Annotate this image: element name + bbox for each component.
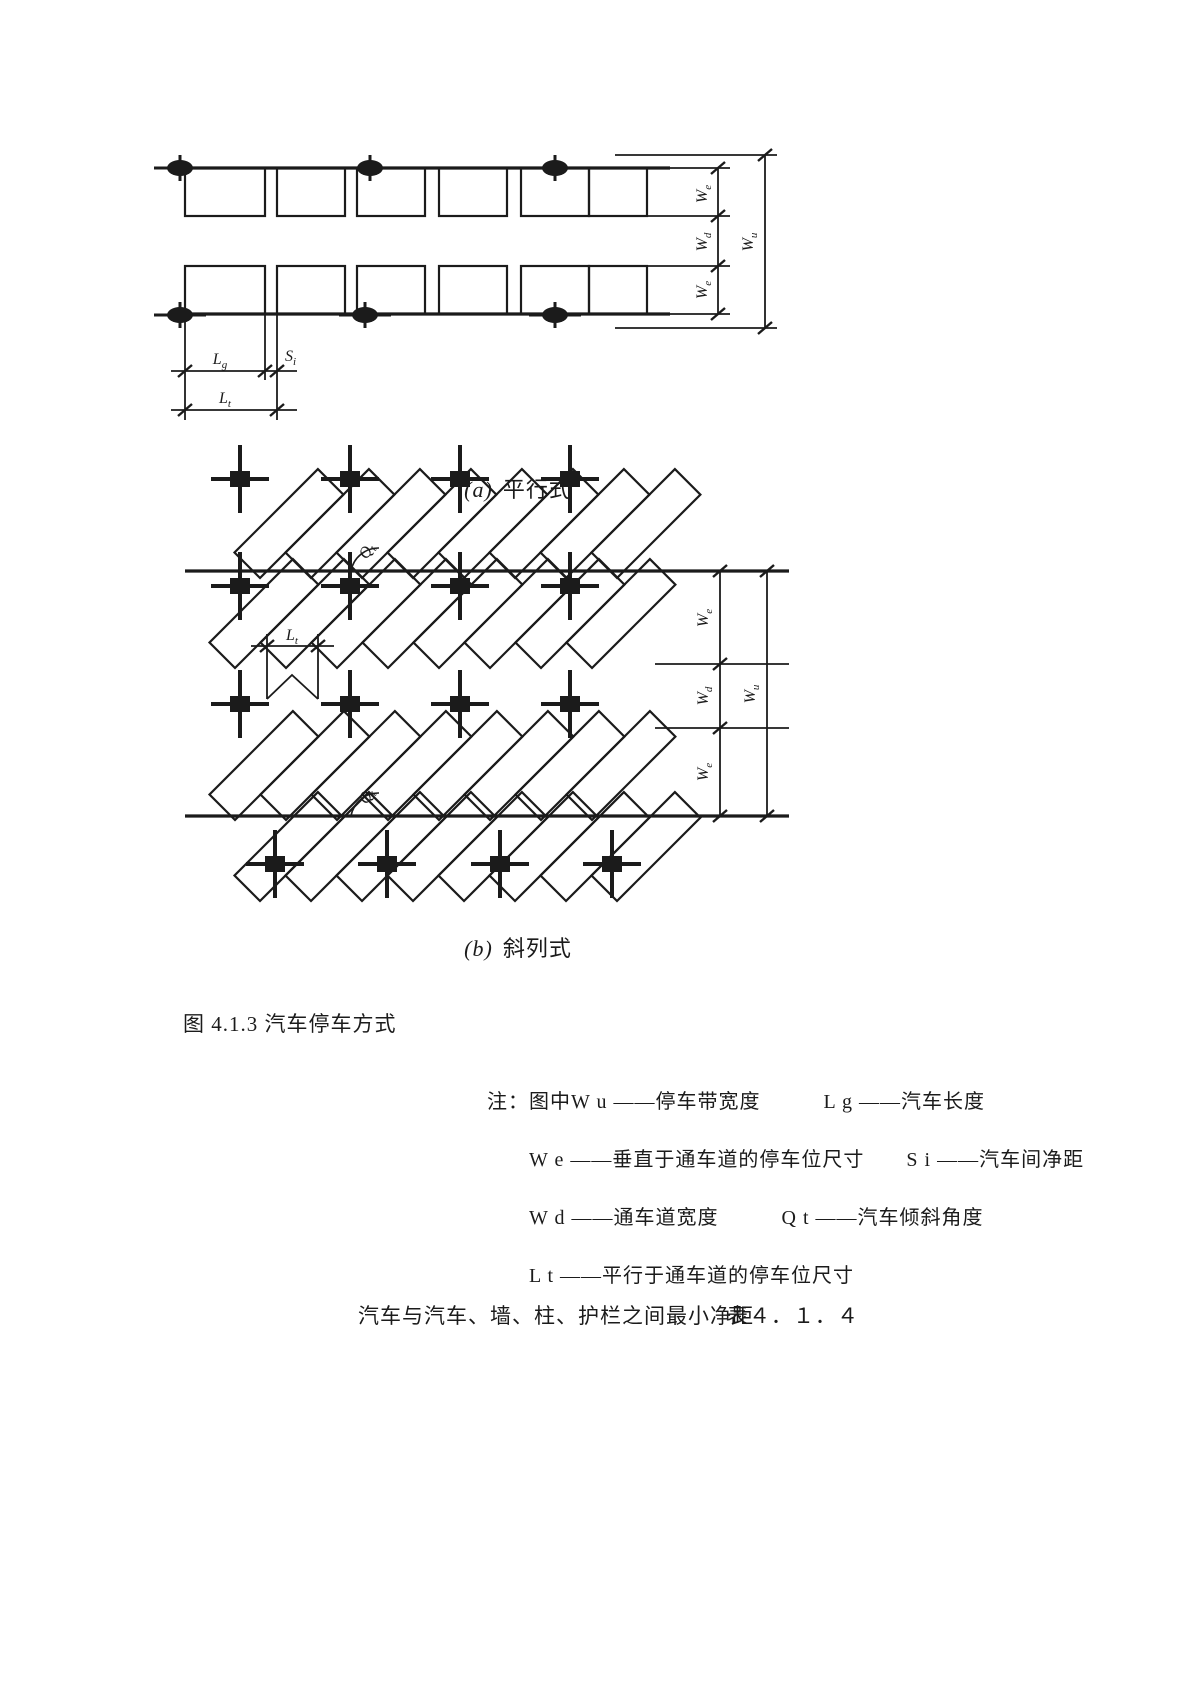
dim-label-si: Si (285, 348, 296, 368)
extension-lines (655, 664, 789, 728)
row1-parking-stalls (185, 168, 647, 216)
note-line-1: 注：图中W u ——停车带宽度 L g ——汽车长度 (487, 1085, 985, 1114)
dim-label-we-upper: We (695, 609, 715, 627)
column-markers (154, 155, 581, 328)
dim-label-we-lower: We (695, 763, 715, 781)
dim-ticks (178, 149, 772, 416)
table-number: 表４．１．４ (727, 1300, 859, 1330)
stall-row-lower-back (235, 792, 701, 901)
diagram-parallel-parking: We Wd We Wu Lg Si Lt (165, 138, 785, 448)
figure-title: 图 4.1.3 汽车停车方式 (183, 1008, 397, 1038)
document-page: We Wd We Wu Lg Si Lt (a)平行式 (0, 0, 1200, 1697)
caption-angled: (b)斜列式 (415, 905, 595, 989)
dim-label-wd: Wd (695, 686, 715, 705)
dim-label-we-upper: We (694, 185, 714, 203)
table-title: 汽车与汽车、墙、柱、护栏之间最小净距 (358, 1300, 754, 1330)
dim-label-wd: Wd (694, 232, 714, 251)
caption-b-label: 斜列式 (503, 936, 572, 961)
dim-label-lt: Lt (218, 390, 232, 410)
note-line-2: W e ——垂直于通车道的停车位尺寸 S i ——汽车间净距 (529, 1143, 1084, 1172)
stall-row-lower (210, 711, 676, 820)
dim-label-wu: Wu (740, 232, 760, 251)
dim-label-we-lower: We (694, 281, 714, 299)
dim-label-lt: Lt (285, 627, 299, 647)
diagram-angled-parking: We Wd We Wu Qt Qt Lt (175, 456, 795, 916)
row2-parking-stalls (185, 266, 647, 314)
stall-row-upper (210, 559, 676, 668)
dim-label-qt-upper: Qt (356, 540, 380, 563)
note-line-3: W d ——通车道宽度 Q t ——汽车倾斜角度 (529, 1201, 984, 1230)
dim-label-wu: Wu (742, 684, 762, 703)
caption-b-marker: (b) (464, 936, 493, 961)
note-line-4: L t ——平行于通车道的停车位尺寸 (529, 1259, 854, 1288)
dim-label-lg: Lg (212, 351, 228, 371)
